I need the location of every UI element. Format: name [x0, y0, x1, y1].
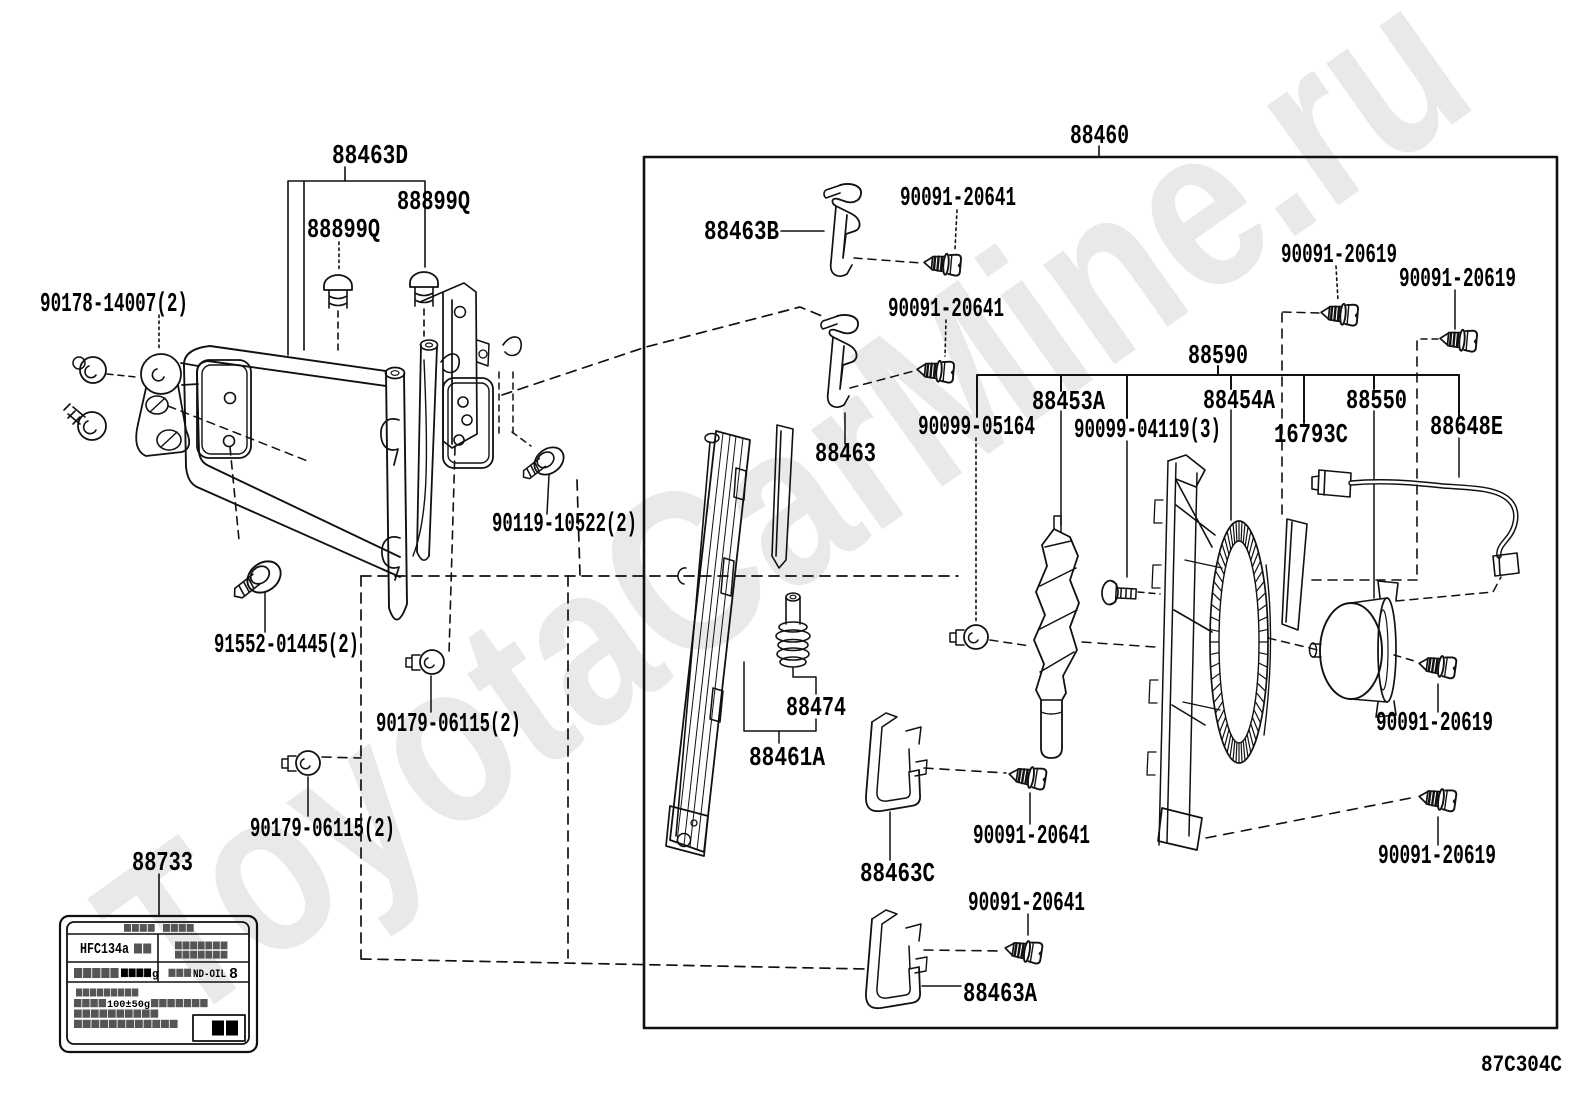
- svg-text:88648E: 88648E: [1430, 413, 1503, 443]
- svg-text:88899Q: 88899Q: [307, 216, 380, 246]
- svg-text:88899Q: 88899Q: [397, 188, 470, 218]
- svg-text:88463C: 88463C: [860, 860, 935, 890]
- svg-text:100±50g: 100±50g: [107, 999, 150, 1011]
- svg-text:88454A: 88454A: [1203, 387, 1276, 417]
- svg-text:90099-04119(3): 90099-04119(3): [1074, 416, 1221, 446]
- svg-text:91552-01445(2): 91552-01445(2): [214, 631, 359, 661]
- svg-text:HFC134a: HFC134a: [80, 942, 129, 958]
- svg-text:90179-06115(2): 90179-06115(2): [250, 815, 395, 845]
- svg-text:88550: 88550: [1346, 387, 1407, 417]
- svg-text:88463D: 88463D: [332, 142, 408, 172]
- svg-text:ND-OIL: ND-OIL: [193, 969, 226, 981]
- svg-text:90091-20619: 90091-20619: [1281, 241, 1397, 271]
- svg-text:16793C: 16793C: [1274, 421, 1348, 451]
- svg-text:90091-20619: 90091-20619: [1399, 265, 1516, 295]
- svg-text:88463A: 88463A: [963, 980, 1038, 1010]
- svg-text:g: g: [152, 969, 159, 981]
- svg-text:88733: 88733: [132, 849, 193, 879]
- svg-text:88463B: 88463B: [704, 218, 779, 248]
- svg-text:8: 8: [229, 966, 238, 983]
- svg-text:87C304C: 87C304C: [1481, 1052, 1562, 1078]
- svg-text:88453A: 88453A: [1032, 388, 1106, 418]
- svg-text:90178-14007(2): 90178-14007(2): [40, 290, 188, 320]
- svg-text:90091-20641: 90091-20641: [968, 889, 1085, 919]
- svg-text:90091-20619: 90091-20619: [1376, 709, 1493, 739]
- svg-text:90179-06115(2): 90179-06115(2): [376, 710, 521, 740]
- svg-text:90091-20619: 90091-20619: [1378, 842, 1496, 872]
- svg-text:90091-20641: 90091-20641: [900, 184, 1016, 214]
- svg-text:88461A: 88461A: [749, 744, 826, 774]
- svg-text:90119-10522(2): 90119-10522(2): [492, 510, 637, 540]
- svg-text:90091-20641: 90091-20641: [973, 822, 1090, 852]
